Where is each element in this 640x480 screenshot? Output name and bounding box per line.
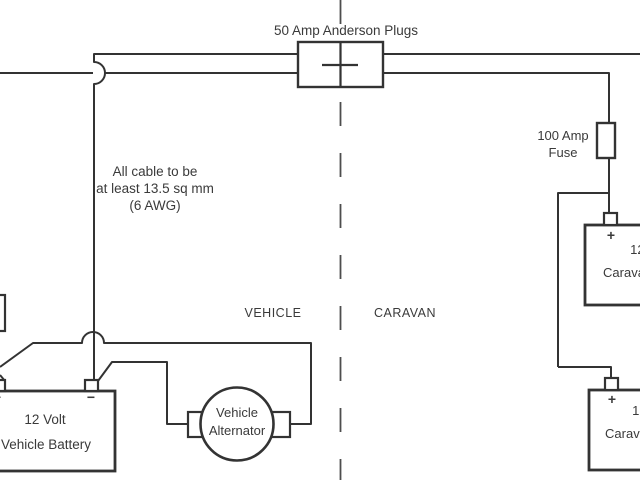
wires bbox=[0, 54, 640, 424]
caravan-battery-bottom-terminal bbox=[605, 378, 618, 390]
wire-branch-to-caravan-battery-bottom-b bbox=[558, 367, 611, 379]
wire-battery-negative-to-plug bbox=[94, 54, 298, 381]
cable-note-line2: at least 13.5 sq mm bbox=[96, 181, 214, 196]
caravan-battery-bottom-label-line2: Caravan Battery bbox=[605, 426, 640, 441]
cable-note: All cable to be at least 13.5 sq mm (6 A… bbox=[96, 164, 214, 213]
zone-label-vehicle: VEHICLE bbox=[245, 306, 302, 320]
vehicle-battery-label-line2: Vehicle Battery bbox=[1, 437, 91, 452]
vehicle-battery-label-line1: 12 Volt bbox=[24, 412, 66, 427]
caravan-battery-top-terminal bbox=[604, 213, 617, 225]
alternator-label-line1: Vehicle bbox=[216, 405, 258, 420]
caravan-battery-top-positive-mark: + bbox=[607, 227, 615, 243]
anderson-plug-symbol bbox=[298, 42, 383, 87]
caravan-battery-bottom-positive-mark: + bbox=[608, 391, 616, 407]
zone-label-caravan: CARAVAN bbox=[374, 306, 436, 320]
wiring-diagram: 50 Amp Anderson Plugs 100 Amp Fuse All c… bbox=[0, 0, 640, 480]
caravan-battery-top-symbol: + 12 Volt Caravan Battery bbox=[585, 213, 640, 305]
cable-note-line1: All cable to be bbox=[113, 164, 198, 179]
anderson-plug-label: 50 Amp Anderson Plugs bbox=[274, 23, 418, 38]
caravan-battery-top-label-line2: Caravan Battery bbox=[603, 265, 640, 280]
vehicle-battery-positive-mark: + bbox=[0, 389, 1, 405]
caravan-battery-bottom-label-line1: 12 Volt bbox=[632, 403, 640, 418]
caravan-battery-top-label-line1: 12 Volt bbox=[630, 242, 640, 257]
alternator-symbol: Vehicle Alternator bbox=[188, 388, 290, 461]
wire-plug-to-fuse bbox=[383, 73, 609, 123]
vehicle-battery-negative-mark: − bbox=[87, 389, 95, 405]
fuse-label-line2: Fuse bbox=[549, 145, 578, 160]
vehicle-battery-symbol: − + 12 Volt Vehicle Battery bbox=[0, 380, 115, 471]
left-edge-partial-component bbox=[0, 295, 5, 331]
alternator-label-line2: Alternator bbox=[209, 423, 266, 438]
caravan-battery-bottom-symbol: + 12 Volt Caravan Battery bbox=[589, 378, 640, 470]
cable-note-line3: (6 AWG) bbox=[129, 198, 180, 213]
fuse-label-line1: 100 Amp bbox=[537, 128, 588, 143]
fuse-symbol bbox=[597, 123, 615, 158]
